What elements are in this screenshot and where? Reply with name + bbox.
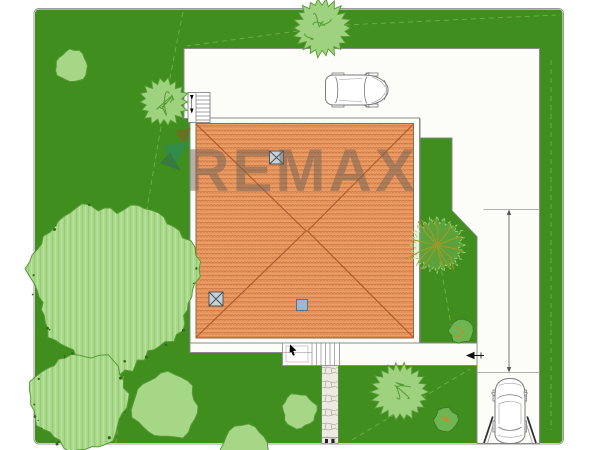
garden-flagstone-path	[322, 366, 338, 444]
site-plan-page: REMAX	[0, 0, 600, 450]
porch-steps	[283, 343, 340, 366]
path-end-post	[325, 439, 328, 443]
car-top-view-parking	[492, 379, 528, 444]
roof-vent	[297, 300, 308, 311]
remax-watermark-text: REMAX	[186, 137, 418, 204]
site-plan-canvas: REMAX	[0, 0, 600, 450]
car-top-view-courtyard	[326, 73, 389, 108]
entry-stairs	[188, 93, 210, 123]
path-end-post	[332, 439, 335, 443]
